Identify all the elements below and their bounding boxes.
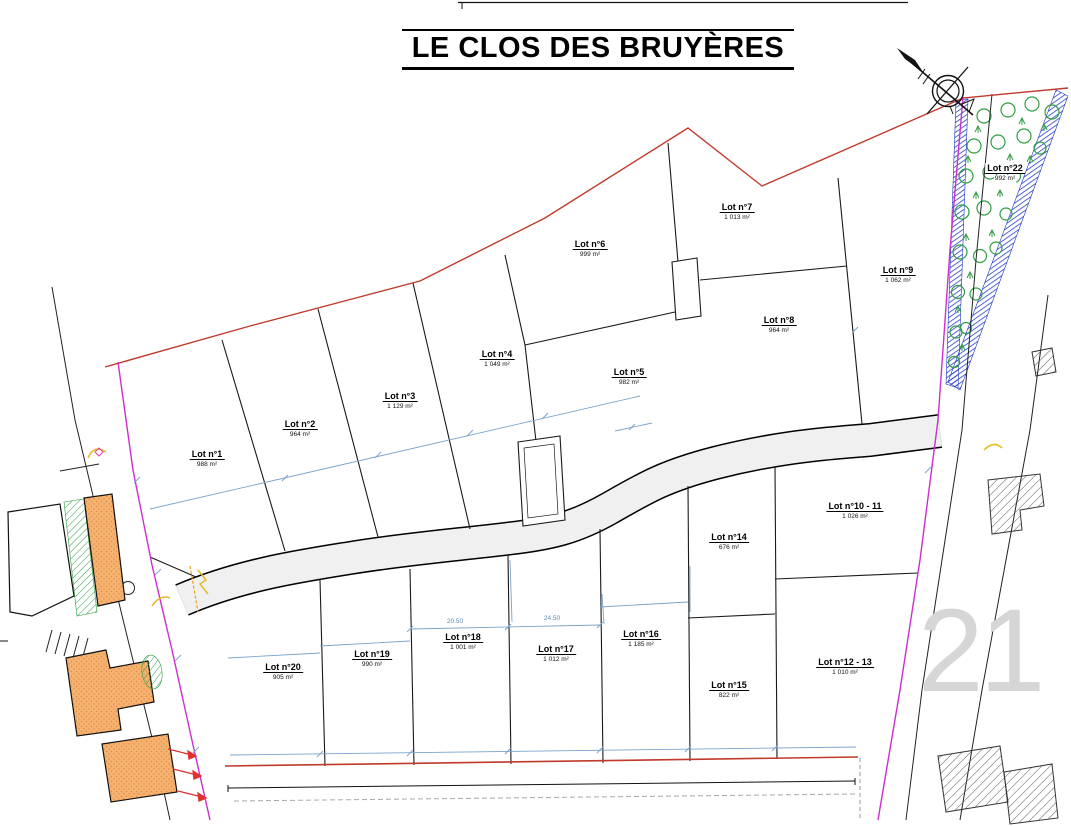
building-orange-2 [66, 650, 154, 736]
lot-label-18: Lot n°18 1 001 m² [443, 632, 483, 652]
neighbor-building-4 [1032, 348, 1056, 376]
building-white [8, 504, 74, 616]
site-plan-canvas: 20.50 24.50 [0, 0, 1071, 826]
lot-label-6: Lot n°6 999 m² [573, 239, 608, 259]
dimension-label: 24.50 [544, 615, 561, 622]
lot-label-3: Lot n°3 1 129 m² [383, 391, 418, 411]
lot-label-4: Lot n°4 1 049 m² [480, 349, 515, 369]
access-strip [672, 258, 701, 320]
lot-label-20: Lot n°20 905 m² [263, 662, 303, 682]
lot-label-12-13: Lot n°12 - 13 1 010 m² [816, 657, 874, 677]
lot-label-19: Lot n°19 990 m² [352, 649, 392, 669]
dimension-label: 20.50 [447, 618, 464, 625]
neighbor-building-1 [988, 474, 1044, 534]
lot-label-16: Lot n°16 1 185 m² [621, 629, 661, 649]
page-title: LE CLOS DES BRUYÈRES [402, 29, 794, 70]
lot-label-14: Lot n°14 676 m² [709, 532, 749, 552]
existing-buildings [8, 494, 177, 802]
lot-label-5: Lot n°5 982 m² [612, 367, 647, 387]
building-orange-3 [102, 734, 177, 802]
lot-label-7: Lot n°7 1 013 m² [720, 202, 755, 222]
neighbor-building-3 [1004, 764, 1058, 824]
lot-label-1: Lot n°1 988 m² [190, 449, 225, 469]
lot-label-8: Lot n°8 964 m² [762, 315, 797, 335]
neighbor-building-2 [938, 746, 1008, 812]
lot-label-2: Lot n°2 964 m² [283, 419, 318, 439]
lot-label-10-11: Lot n°10 - 11 1 026 m² [826, 501, 883, 521]
lot-label-15: Lot n°15 822 m² [709, 680, 749, 700]
parcel-21-watermark: 21 [918, 592, 1041, 710]
bottom-survey-lines [228, 758, 860, 820]
lot-label-22: Lot n°22 992 m² [985, 163, 1025, 183]
subdivision-plan: 20.50 24.50 [0, 0, 1071, 826]
lot-label-9: Lot n°9 1 062 m² [881, 265, 916, 285]
green-area [946, 88, 1068, 390]
lot-label-17: Lot n°17 1 012 m² [536, 644, 576, 664]
